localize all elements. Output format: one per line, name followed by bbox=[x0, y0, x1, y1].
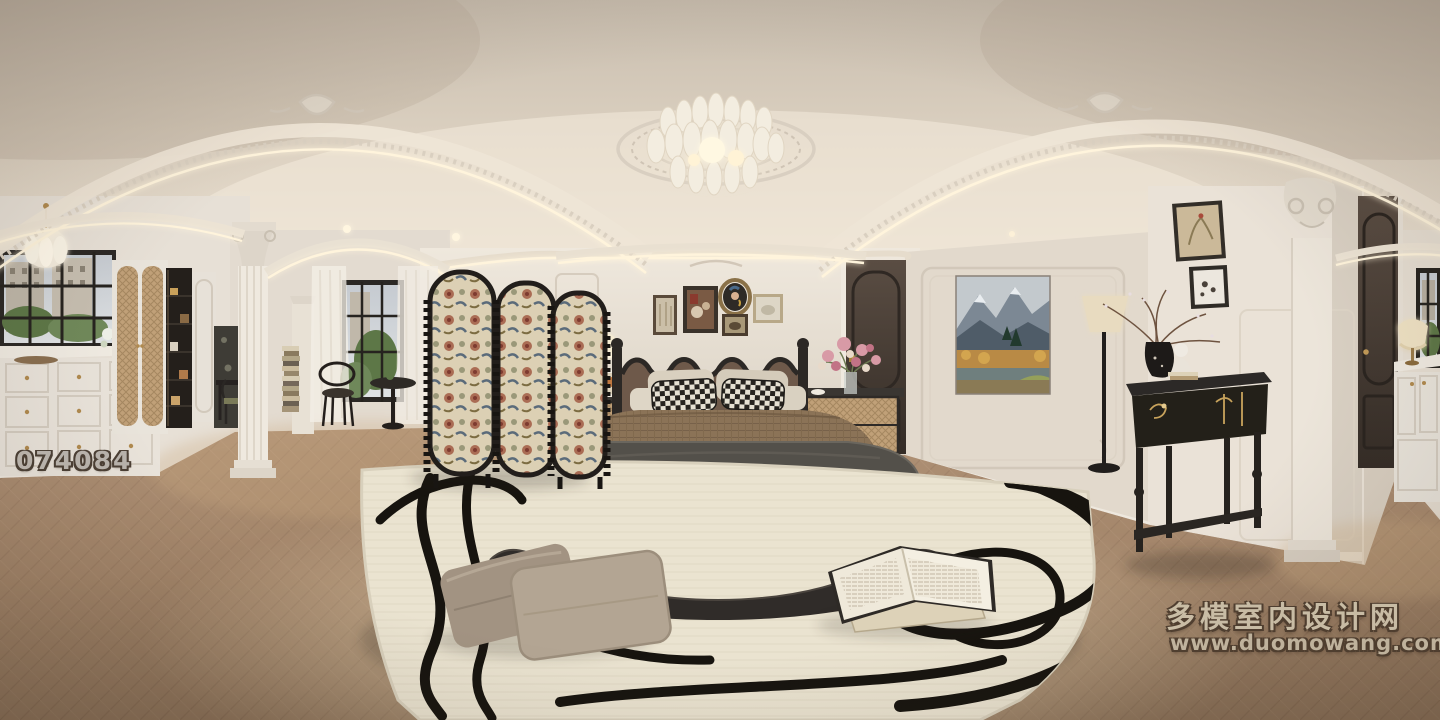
panorama-render bbox=[0, 0, 1440, 720]
panorama-image: 074084 多模室内设计网 www.duomowang.com bbox=[0, 0, 1440, 720]
vignette bbox=[0, 0, 1440, 720]
